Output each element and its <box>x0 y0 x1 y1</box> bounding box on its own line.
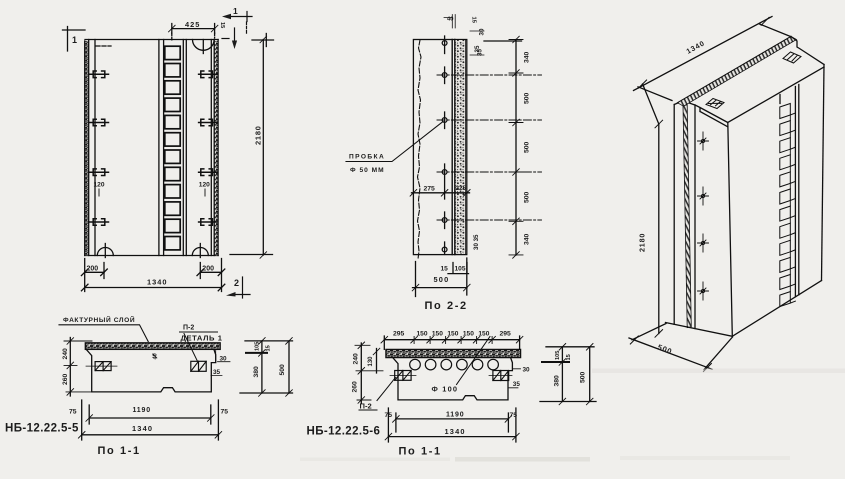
svg-text:260: 260 <box>352 381 359 393</box>
svg-text:НБ-12.22.5-6: НБ-12.22.5-6 <box>307 426 381 438</box>
svg-text:2180: 2180 <box>254 125 263 145</box>
svg-text:500: 500 <box>279 364 286 376</box>
svg-text:150: 150 <box>478 330 489 337</box>
svg-text:200: 200 <box>202 265 214 272</box>
svg-text:НБ-12.22.5-5: НБ-12.22.5-5 <box>5 423 79 435</box>
svg-text:2180: 2180 <box>638 233 647 252</box>
svg-text:30: 30 <box>479 28 486 35</box>
svg-text:15: 15 <box>471 17 477 24</box>
svg-text:105: 105 <box>255 342 261 351</box>
svg-text:1: 1 <box>72 35 77 45</box>
svg-text:ДЕТАЛЬ 1: ДЕТАЛЬ 1 <box>181 334 223 343</box>
svg-text:130: 130 <box>368 356 374 367</box>
svg-text:30: 30 <box>523 367 531 374</box>
svg-text:150: 150 <box>417 330 428 337</box>
svg-text:30: 30 <box>220 355 228 362</box>
svg-text:1190: 1190 <box>446 412 464 419</box>
svg-text:1340: 1340 <box>132 424 153 433</box>
svg-text:295: 295 <box>393 330 405 337</box>
svg-text:275: 275 <box>424 185 436 192</box>
svg-text:500: 500 <box>524 92 531 104</box>
svg-text:500: 500 <box>524 191 531 203</box>
svg-text:1: 1 <box>233 6 238 16</box>
svg-text:75: 75 <box>69 409 77 416</box>
svg-text:35: 35 <box>474 45 481 52</box>
svg-text:240: 240 <box>353 353 360 365</box>
svg-text:15: 15 <box>566 354 572 360</box>
svg-text:15: 15 <box>266 345 272 351</box>
svg-text:150: 150 <box>447 330 458 337</box>
svg-text:105: 105 <box>555 351 561 360</box>
svg-text:1340: 1340 <box>445 427 466 436</box>
svg-text:75: 75 <box>510 412 518 419</box>
svg-text:240: 240 <box>62 348 69 360</box>
svg-text:500: 500 <box>434 275 450 284</box>
svg-text:260: 260 <box>62 373 69 385</box>
svg-text:120: 120 <box>94 182 105 189</box>
svg-text:500: 500 <box>524 141 531 153</box>
svg-text:П-2: П-2 <box>183 325 194 332</box>
svg-text:150: 150 <box>463 330 474 337</box>
svg-text:200: 200 <box>87 265 99 272</box>
svg-text:2: 2 <box>234 278 239 288</box>
svg-text:35: 35 <box>513 381 521 388</box>
svg-text:По 1-1: По 1-1 <box>399 446 442 458</box>
svg-text:35: 35 <box>213 369 221 376</box>
svg-text:1340: 1340 <box>147 277 167 286</box>
svg-text:15: 15 <box>441 265 449 272</box>
svg-text:По 1-1: По 1-1 <box>98 445 141 457</box>
svg-text:340: 340 <box>524 233 531 245</box>
svg-text:120: 120 <box>199 182 210 189</box>
svg-text:380: 380 <box>554 375 561 387</box>
svg-text:30 35: 30 35 <box>473 234 480 250</box>
svg-text:ФАКТУРНЫЙ СЛОЙ: ФАКТУРНЫЙ СЛОЙ <box>63 315 135 324</box>
svg-text:500: 500 <box>580 371 587 383</box>
svg-text:15: 15 <box>219 22 225 28</box>
svg-text:425: 425 <box>185 20 200 29</box>
svg-text:Ф 100: Ф 100 <box>432 385 459 394</box>
svg-text:По 2-2: По 2-2 <box>425 300 468 312</box>
svg-text:295: 295 <box>500 330 512 337</box>
svg-text:75: 75 <box>221 409 229 416</box>
svg-text:Ф 50 ММ: Ф 50 ММ <box>350 167 385 174</box>
svg-text:40: 40 <box>447 17 453 23</box>
svg-text:340: 340 <box>524 51 531 63</box>
svg-text:380: 380 <box>253 366 260 378</box>
svg-text:75: 75 <box>385 412 393 419</box>
svg-text:ПРОБКА: ПРОБКА <box>349 154 385 161</box>
svg-text:225: 225 <box>456 185 467 192</box>
svg-text:105: 105 <box>455 265 466 272</box>
svg-text:150: 150 <box>432 330 443 337</box>
svg-text:1190: 1190 <box>133 407 151 414</box>
